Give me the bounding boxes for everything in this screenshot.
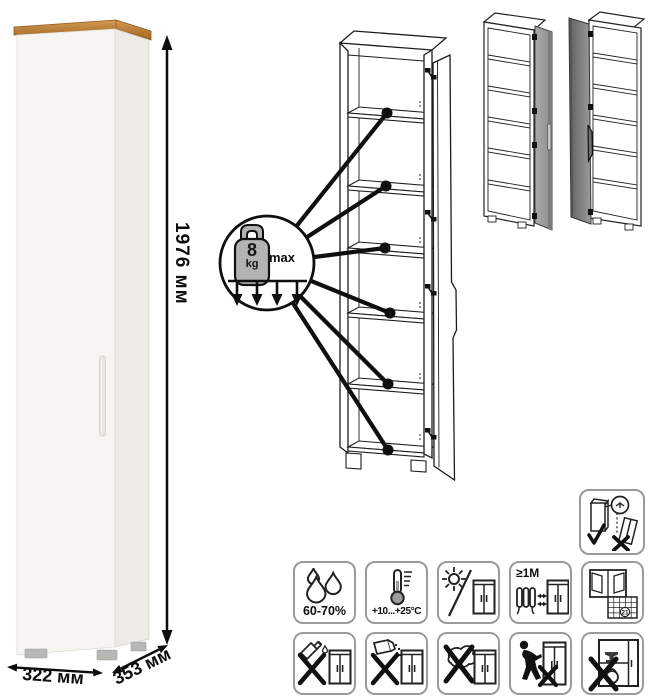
x-mark (373, 655, 397, 683)
person-silhouette (522, 650, 542, 680)
care-icon-sunlight (437, 561, 500, 624)
do-not-drag-icon (513, 637, 569, 691)
care-icon-wall-anchor (579, 489, 645, 555)
anchor-to-wall-icon (583, 493, 641, 551)
x-mark (300, 655, 324, 683)
door-handle (548, 124, 552, 150)
no-direct-sunlight-icon (441, 566, 497, 620)
shelf-callout-dots (380, 108, 396, 456)
no-abrasive-powder-icon (369, 637, 425, 691)
care-icon-no-dragging (509, 632, 572, 695)
height-dimension-arrow (162, 35, 173, 645)
no-spilled-liquids-icon (297, 637, 353, 691)
calendar-day: 21 (621, 609, 629, 616)
shelf-load-unit: kg (237, 259, 267, 270)
care-icon-humidity: 60-70% (293, 561, 356, 624)
do-not-overload-icon (585, 636, 641, 692)
shelf-load-qualifier: max (269, 250, 295, 265)
care-icon-heat-distance: ≥1М (509, 561, 572, 624)
cabinet-photo (0, 0, 200, 700)
product-sheet: 1976 мм 322 мм 353 мм (0, 0, 648, 700)
humidity-label: 60-70% (303, 605, 346, 618)
shelf-load-value: 8 (237, 241, 267, 259)
care-icon-no-scouring (437, 632, 500, 695)
care-icon-no-liquids (293, 632, 356, 695)
calendar: 21 (608, 597, 637, 618)
cabinet-side-face (115, 29, 149, 647)
height-dimension-label: 1976 мм (170, 222, 192, 305)
door-option-right (478, 5, 562, 239)
care-icon-ventilation: 21 (581, 561, 644, 624)
care-icon-temperature: +10...+25°C (365, 561, 428, 624)
water-drops-icon (303, 568, 347, 604)
care-icon-no-powders (365, 632, 428, 695)
thermometer-icon (375, 568, 419, 606)
care-icon-no-overload (581, 632, 644, 695)
cabinet-door-front (17, 29, 115, 655)
no-scouring-pad-icon (441, 637, 497, 691)
door-option-left (562, 5, 648, 239)
door-handle-groove (100, 356, 106, 436)
heat-distance-label: ≥1М (516, 566, 539, 580)
temperature-label: +10...+25°C (372, 607, 421, 617)
window-calendar-ventilation-icon: 21 (585, 566, 641, 620)
cabinet-line-art (340, 31, 457, 480)
open-door (433, 55, 457, 480)
